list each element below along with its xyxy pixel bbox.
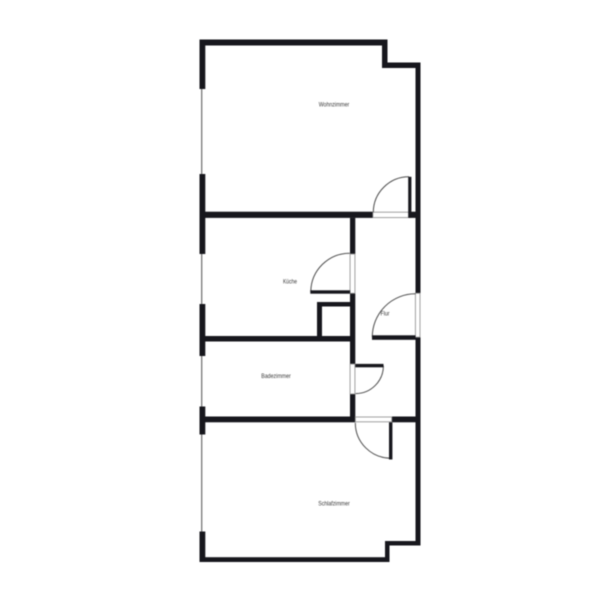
svg-text:Schlafzimmer: Schlafzimmer bbox=[318, 500, 350, 507]
svg-text:Wohnzimmer: Wohnzimmer bbox=[319, 102, 350, 109]
svg-text:Flur: Flur bbox=[381, 311, 391, 318]
svg-text:Badezimmer: Badezimmer bbox=[261, 373, 291, 380]
svg-text:Küche: Küche bbox=[283, 279, 297, 286]
